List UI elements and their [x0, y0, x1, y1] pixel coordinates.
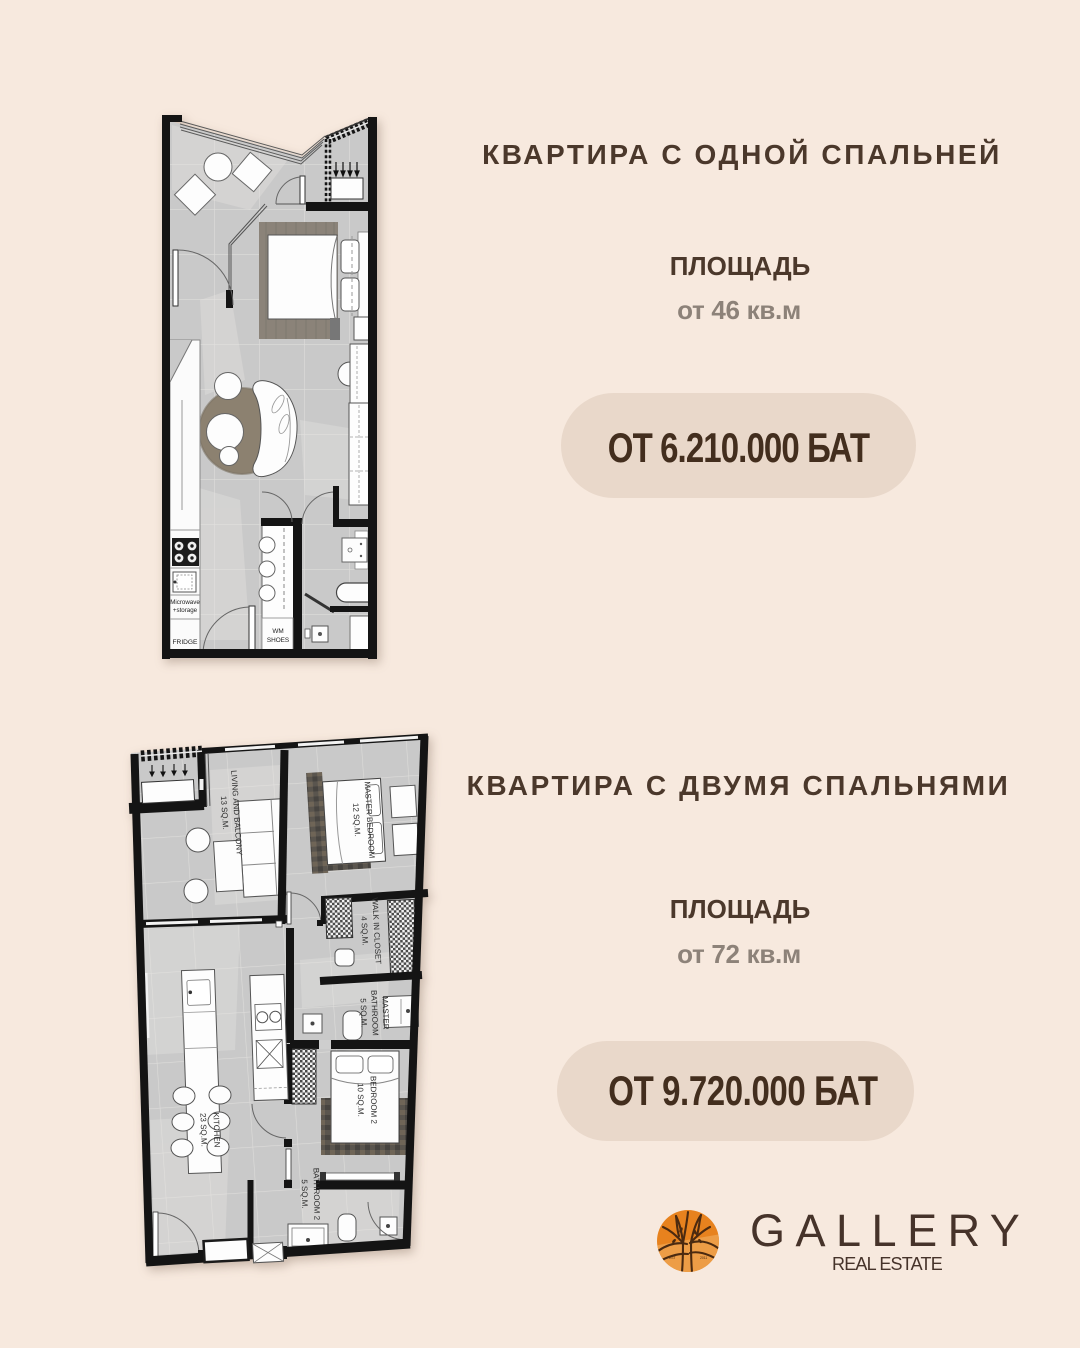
svg-text:BEDROOM 2: BEDROOM 2 [369, 1076, 379, 1125]
svg-text:5 SQ.M.: 5 SQ.M. [300, 1179, 310, 1208]
svg-text:BATHROOM 2: BATHROOM 2 [312, 1168, 322, 1221]
svg-text:MASTER: MASTER [380, 996, 390, 1030]
svg-text:+storage: +storage [173, 607, 198, 614]
svg-text:KITCHEN: KITCHEN [211, 1112, 221, 1148]
svg-text:EST: EST [669, 1256, 676, 1260]
svg-text:Microwave: Microwave [170, 599, 200, 606]
svg-text:5 SQ.M.: 5 SQ.M. [358, 998, 368, 1028]
svg-text:WM: WM [272, 628, 283, 635]
svg-text:FRIDGE: FRIDGE [173, 639, 199, 646]
svg-text:4 SQ.M.: 4 SQ.M. [359, 916, 370, 946]
svg-text:BATHROOM: BATHROOM [369, 990, 380, 1036]
svg-text:2011: 2011 [700, 1256, 707, 1260]
svg-text:10 SQ.M.: 10 SQ.M. [356, 1083, 366, 1117]
svg-text:23 SQ.M.: 23 SQ.M. [198, 1113, 208, 1147]
svg-text:SHOES: SHOES [267, 637, 289, 644]
